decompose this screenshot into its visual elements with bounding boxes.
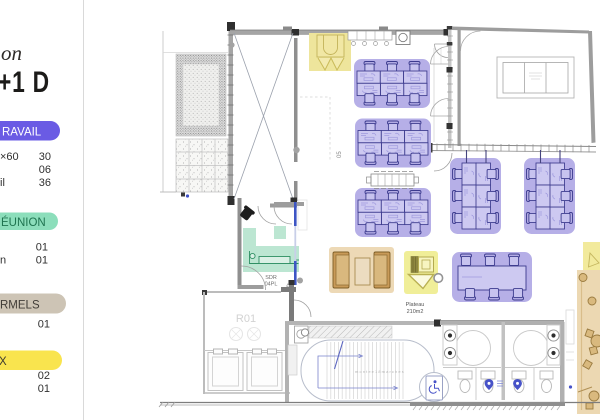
svg-text:02: 02 xyxy=(38,370,50,382)
svg-text:SDR: SDR xyxy=(265,275,277,281)
svg-text:210m2: 210m2 xyxy=(407,309,424,315)
svg-text:RMELS: RMELS xyxy=(0,300,40,312)
svg-text:36: 36 xyxy=(39,177,51,189)
svg-text:06: 06 xyxy=(39,164,51,176)
svg-text:01: 01 xyxy=(38,383,50,395)
svg-text:il: il xyxy=(0,177,5,189)
svg-text:30: 30 xyxy=(39,151,51,163)
svg-text:on: on xyxy=(1,41,22,65)
svg-text:Plateau: Plateau xyxy=(406,302,425,308)
svg-text:×60: ×60 xyxy=(0,151,19,163)
svg-text:01: 01 xyxy=(38,319,50,331)
svg-text:+1 D: +1 D xyxy=(0,65,50,99)
svg-text:n: n xyxy=(0,255,6,267)
svg-text:04PL: 04PL xyxy=(265,282,278,288)
svg-text:R01: R01 xyxy=(236,313,256,325)
svg-text:RAVAIL: RAVAIL xyxy=(2,127,42,139)
svg-text:05: 05 xyxy=(337,151,343,158)
svg-text:OX: OX xyxy=(0,356,7,368)
svg-text:01: 01 xyxy=(36,255,48,267)
svg-text:m o n t e e 1 8 m a r c h e: m o n t e e 1 8 m a r c h e s xyxy=(355,369,404,374)
svg-text:ÉUNION: ÉUNION xyxy=(1,216,46,229)
svg-text:01: 01 xyxy=(36,242,48,254)
